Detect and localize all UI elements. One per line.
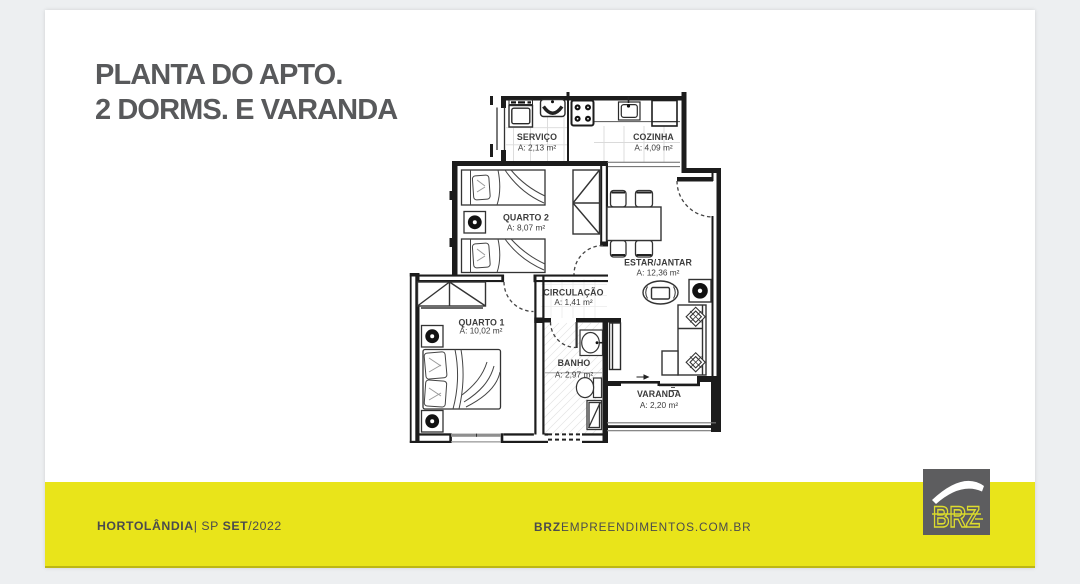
svg-text:A: 4,09 m²: A: 4,09 m² xyxy=(634,143,673,153)
svg-text:A: 10,02 m²: A: 10,02 m² xyxy=(460,326,503,336)
svg-text:A: 2,13 m²: A: 2,13 m² xyxy=(518,143,557,153)
svg-text:A: 12,36 m²: A: 12,36 m² xyxy=(637,268,680,278)
svg-text:QUARTO 2: QUARTO 2 xyxy=(503,213,549,223)
svg-text:COZINHA: COZINHA xyxy=(633,132,674,142)
svg-text:A: 1,41 m²: A: 1,41 m² xyxy=(554,297,593,307)
svg-text:A: 8,07 m²: A: 8,07 m² xyxy=(507,223,546,233)
svg-text:A: 2,97 m²: A: 2,97 m² xyxy=(555,370,594,380)
svg-text:BANHO: BANHO xyxy=(558,358,591,368)
svg-text:SERVIÇO: SERVIÇO xyxy=(517,132,557,142)
svg-text:CIRCULAÇÃO: CIRCULAÇÃO xyxy=(543,288,603,298)
svg-text:VARANDA: VARANDA xyxy=(637,389,682,399)
svg-text:A: 2,20 m²: A: 2,20 m² xyxy=(640,400,679,410)
svg-text:BRZ: BRZ xyxy=(933,501,980,534)
svg-text:ESTAR/JANTAR: ESTAR/JANTAR xyxy=(624,258,692,268)
